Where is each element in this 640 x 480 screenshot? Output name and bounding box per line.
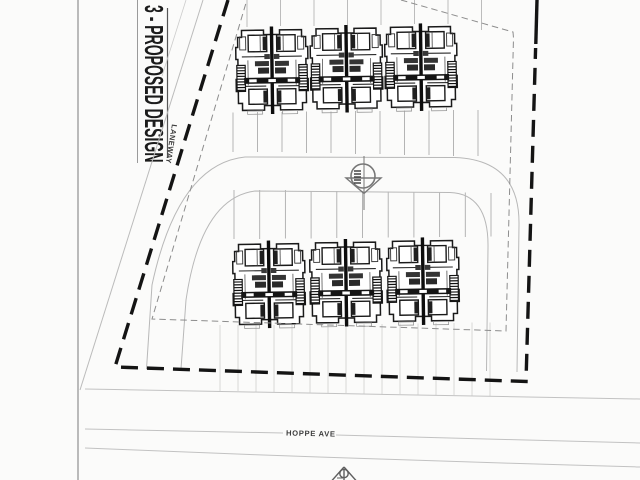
svg-text:HOPPE AVE: HOPPE AVE [286, 429, 336, 439]
svg-text:3 - PROPOSED DESIGN: 3 - PROPOSED DESIGN [139, 5, 168, 162]
